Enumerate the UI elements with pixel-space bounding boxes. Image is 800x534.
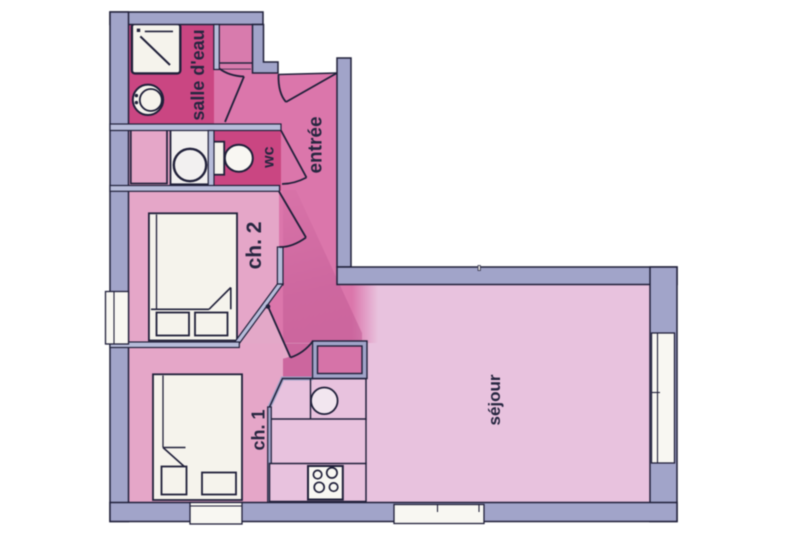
svg-text:ch. 2: ch. 2 bbox=[243, 222, 266, 270]
svg-text:wc: wc bbox=[261, 146, 278, 168]
svg-text:salle d'eau: salle d'eau bbox=[188, 29, 208, 120]
svg-text:séjour: séjour bbox=[485, 374, 504, 425]
svg-text:entrée: entrée bbox=[306, 116, 327, 173]
svg-text:ch. 1: ch. 1 bbox=[249, 409, 269, 450]
